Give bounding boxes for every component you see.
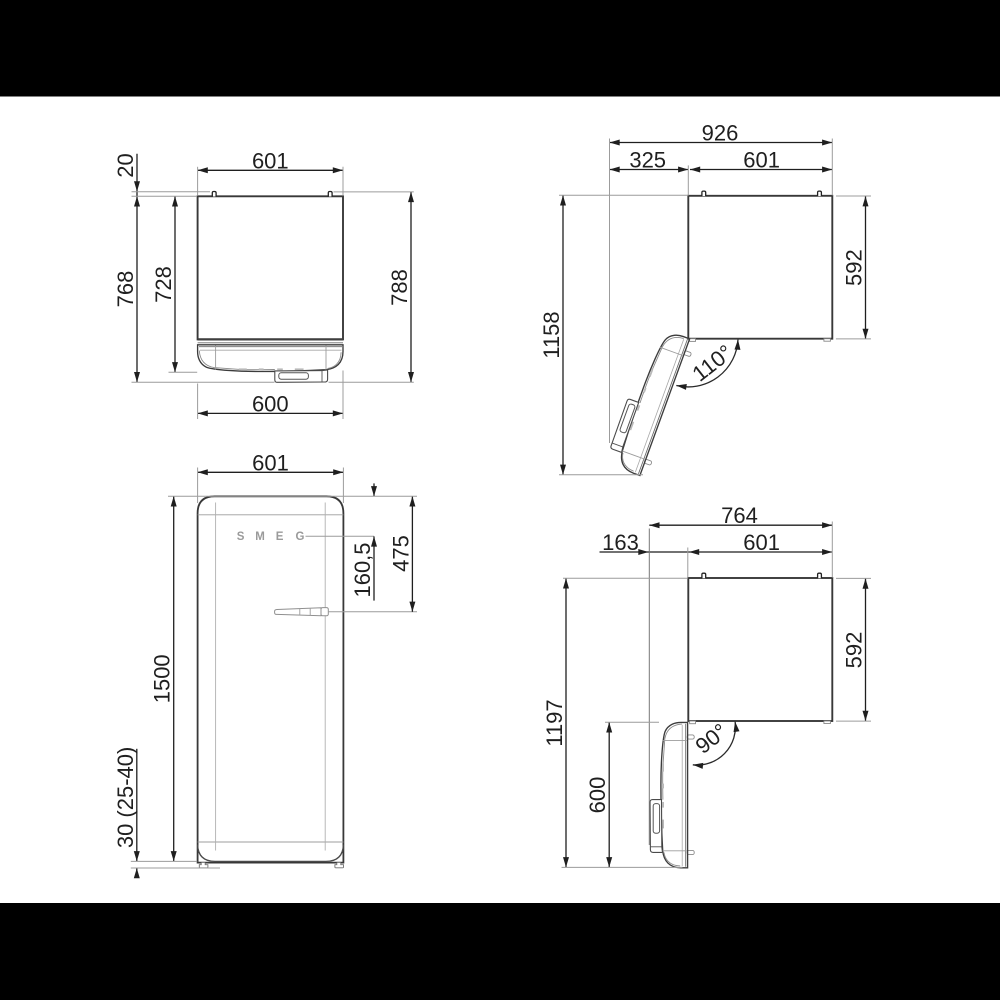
svg-text:475: 475	[388, 535, 413, 572]
svg-text:20: 20	[113, 153, 138, 177]
svg-text:764: 764	[721, 503, 758, 528]
svg-text:600: 600	[252, 391, 289, 416]
svg-text:926: 926	[702, 121, 739, 146]
svg-text:1158: 1158	[539, 311, 564, 358]
svg-text:600: 600	[585, 777, 610, 814]
svg-text:30 (25-40): 30 (25-40)	[113, 747, 138, 849]
svg-text:601: 601	[743, 530, 780, 555]
svg-text:601: 601	[743, 148, 780, 173]
svg-text:601: 601	[252, 450, 289, 475]
svg-text:163: 163	[602, 530, 639, 555]
svg-text:160,5: 160,5	[350, 542, 375, 597]
svg-text:S: S	[237, 531, 245, 543]
svg-text:M: M	[255, 531, 265, 543]
svg-text:592: 592	[842, 249, 867, 286]
svg-text:G: G	[296, 531, 305, 543]
svg-text:768: 768	[113, 271, 138, 308]
svg-text:601: 601	[252, 148, 289, 173]
svg-text:728: 728	[151, 266, 176, 303]
svg-text:788: 788	[387, 269, 412, 306]
svg-text:592: 592	[842, 632, 867, 669]
svg-text:1500: 1500	[150, 654, 175, 703]
svg-text:325: 325	[629, 148, 666, 173]
svg-text:E: E	[276, 531, 284, 543]
svg-text:1197: 1197	[542, 699, 567, 746]
